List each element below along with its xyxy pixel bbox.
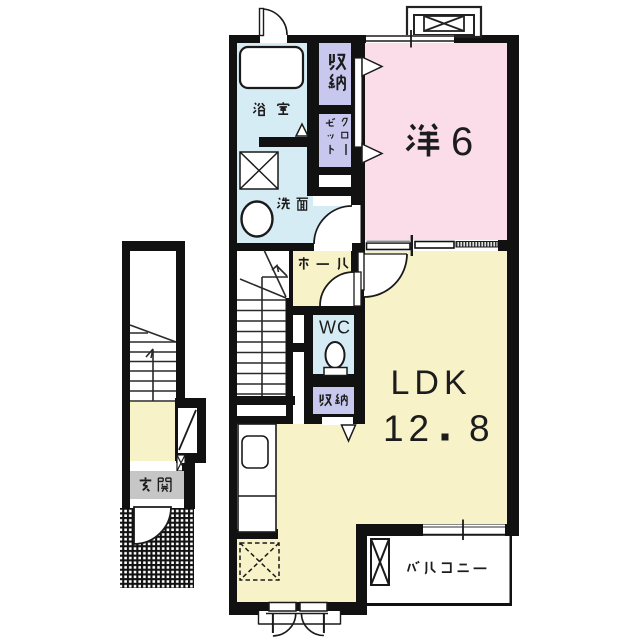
svg-text:2: 2	[409, 408, 430, 449]
svg-text:8: 8	[469, 408, 490, 449]
svg-text:6: 6	[451, 120, 473, 164]
svg-text:1: 1	[383, 408, 404, 449]
svg-text:WC: WC	[319, 318, 351, 338]
svg-text:LDK: LDK	[391, 364, 472, 402]
